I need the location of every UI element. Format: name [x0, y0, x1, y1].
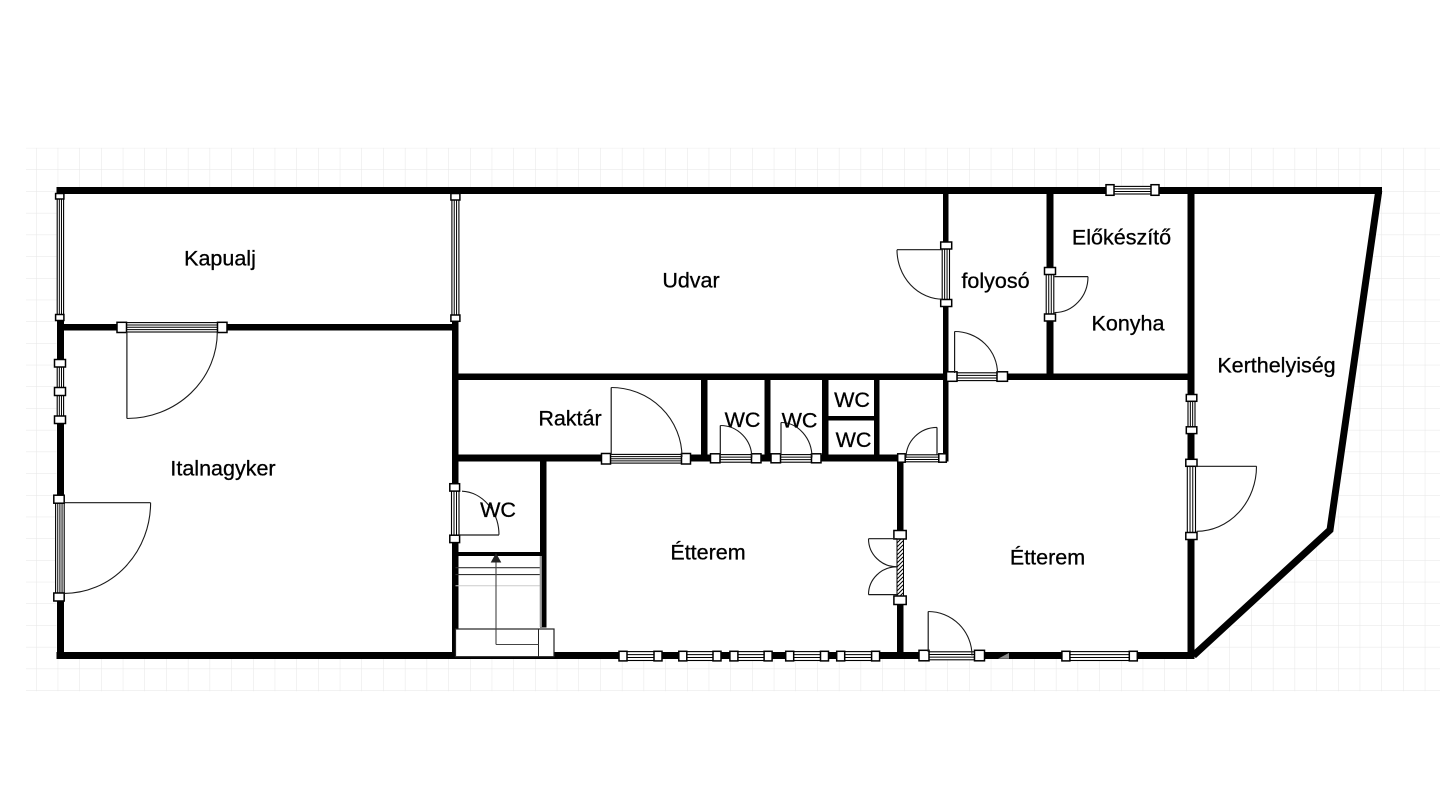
- svg-text:WC: WC: [782, 409, 818, 433]
- svg-text:Konyha: Konyha: [1092, 312, 1165, 336]
- svg-text:WC: WC: [834, 388, 870, 412]
- svg-text:Kapualj: Kapualj: [184, 247, 256, 271]
- svg-text:Étterem: Étterem: [670, 540, 745, 565]
- svg-text:Előkészítő: Előkészítő: [1072, 226, 1171, 250]
- svg-text:Étterem: Étterem: [1010, 545, 1085, 570]
- svg-text:WC: WC: [836, 428, 872, 452]
- svg-text:folyosó: folyosó: [961, 269, 1029, 293]
- svg-text:WC: WC: [480, 498, 516, 522]
- svg-text:Udvar: Udvar: [662, 269, 719, 293]
- svg-text:Kerthelyiség: Kerthelyiség: [1217, 354, 1335, 378]
- svg-text:Raktár: Raktár: [538, 407, 601, 431]
- svg-text:WC: WC: [725, 408, 761, 432]
- svg-text:Italnagyker: Italnagyker: [170, 457, 275, 481]
